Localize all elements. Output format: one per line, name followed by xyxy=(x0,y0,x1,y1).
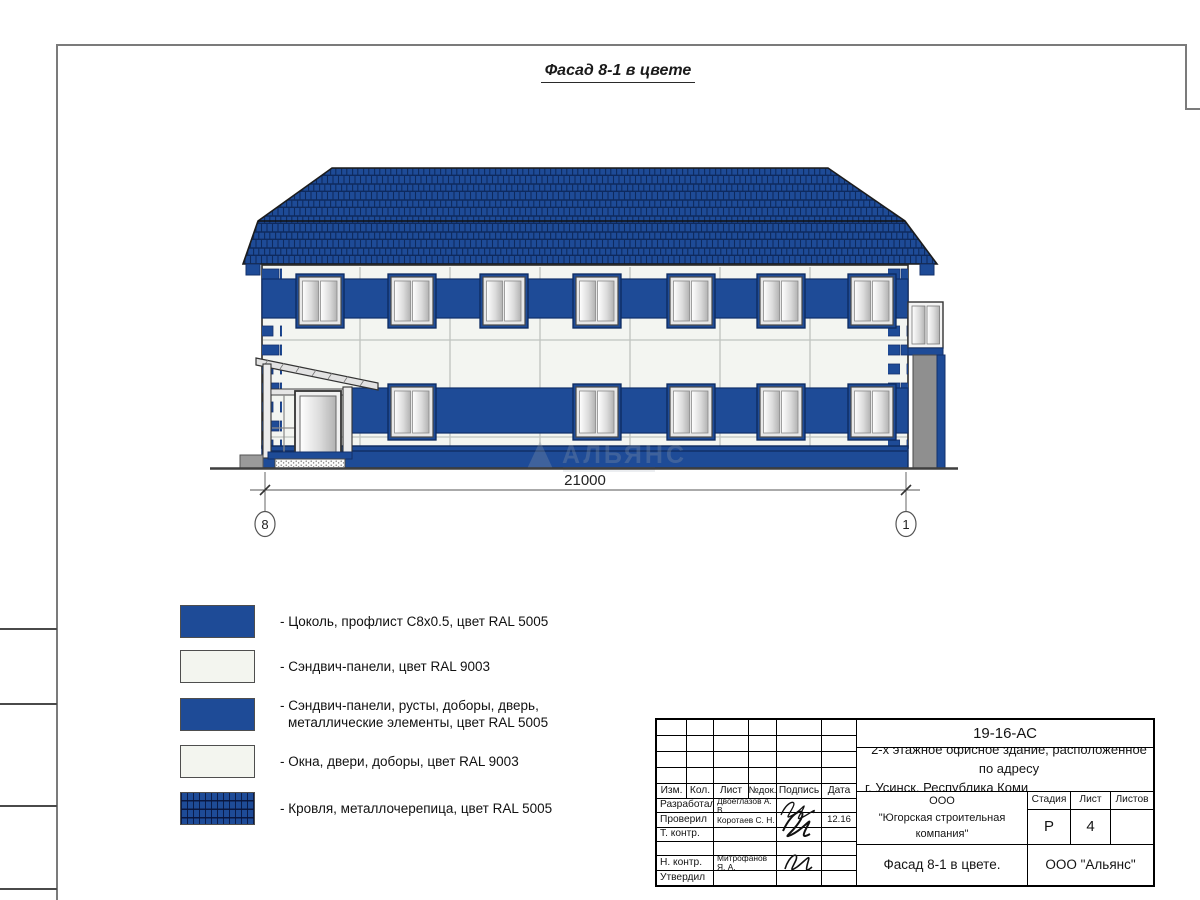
page-title: Фасад 8-1 в цвете xyxy=(541,62,696,83)
legend-swatch-windows xyxy=(180,745,255,778)
tb-drawing-title: Фасад 8-1 в цвете. xyxy=(857,845,1028,885)
tb-revision-cell xyxy=(714,768,749,784)
tb-date xyxy=(822,799,857,813)
legend-label: - Цоколь, профлист С8х0.5, цвет RAL 5005 xyxy=(280,613,548,630)
tb-revision-cell xyxy=(822,752,857,768)
fold-mark xyxy=(0,888,57,890)
tb-signature-cell xyxy=(777,842,822,856)
tb-revision-cell xyxy=(714,752,749,768)
tb-revision-cell xyxy=(714,736,749,752)
tb-revision-cell xyxy=(749,752,777,768)
tb-name xyxy=(714,828,777,842)
tb-date xyxy=(822,828,857,842)
tb-col-data: Дата xyxy=(822,784,857,799)
dimension: 21000 xyxy=(250,472,920,511)
tb-revision-cell xyxy=(687,768,714,784)
tb-col-ndok: №док. xyxy=(749,784,777,799)
legend-swatch-plinth xyxy=(180,605,255,638)
tb-role xyxy=(657,842,714,856)
tb-revision-cell xyxy=(777,752,822,768)
window xyxy=(480,274,528,328)
title-block: Изм. Кол. Лист №док. Подпись Дата Разраб… xyxy=(655,718,1155,887)
svg-text:1: 1 xyxy=(902,517,909,532)
tb-sheet-label: Лист xyxy=(1071,792,1111,810)
sheet-border-left xyxy=(56,44,58,900)
watermark-text: АЛЬЯНС xyxy=(562,441,687,469)
dimension-label: 21000 xyxy=(564,472,606,489)
tb-revision-cell xyxy=(822,720,857,736)
tb-revision-cell xyxy=(749,768,777,784)
window xyxy=(667,274,715,328)
tb-revision-cell xyxy=(657,736,687,752)
tb-description: 2-х этажное офисное здание, расположенно… xyxy=(857,748,1153,792)
window xyxy=(848,274,896,328)
tb-revision-cell xyxy=(687,720,714,736)
legend-swatch-roof xyxy=(180,792,255,825)
tb-org-name: ООО "Альянс" xyxy=(1028,845,1153,885)
sheet-border-top xyxy=(57,44,1187,46)
tb-revision-cell xyxy=(749,720,777,736)
tb-name: Митрофанов Я. А. xyxy=(714,856,777,871)
window xyxy=(667,384,715,440)
axis-marker-8: 8 xyxy=(255,512,275,537)
window xyxy=(388,274,436,328)
tb-sheets-label: Листов xyxy=(1111,792,1153,810)
tb-sheet-value: 4 xyxy=(1071,810,1111,845)
window xyxy=(757,384,805,440)
legend-item-plinth: - Цоколь, профлист С8х0.5, цвет RAL 5005 xyxy=(180,605,548,638)
tb-name xyxy=(714,871,777,885)
tb-date: 12.16 xyxy=(822,813,857,828)
tb-signature-cell xyxy=(777,871,822,885)
tb-revision-cell xyxy=(657,768,687,784)
tb-revision-cell xyxy=(714,720,749,736)
legend-label: - Сэндвич-панели, русты, доборы, дверь, … xyxy=(280,697,548,731)
tb-name xyxy=(714,842,777,856)
drawing-sheet: АЛЬЯНС 21000 8 1 Фасад 8-1 в цвете xyxy=(0,0,1200,900)
tb-company: ООО "Югорская строительная компания" xyxy=(857,792,1028,845)
window xyxy=(388,384,436,440)
legend-item-windows: - Окна, двери, доборы, цвет RAL 9003 xyxy=(180,745,519,778)
tb-role: Т. контр. xyxy=(657,828,714,842)
legend-swatch-sandwich-white xyxy=(180,650,255,683)
legend-item-roof: - Кровля, металлочерепица, цвет RAL 5005 xyxy=(180,792,552,825)
window xyxy=(757,274,805,328)
legend-label: - Окна, двери, доборы, цвет RAL 9003 xyxy=(280,753,519,770)
tb-date xyxy=(822,871,857,885)
side-annex xyxy=(908,302,945,468)
tb-doc-number: 19-16-АС xyxy=(857,720,1153,748)
legend-item-sandwich-blue: - Сэндвич-панели, русты, доборы, дверь, … xyxy=(180,697,548,731)
axis-marker-1: 1 xyxy=(896,512,916,537)
fold-mark xyxy=(0,703,57,705)
tb-revision-cell xyxy=(687,736,714,752)
svg-text:8: 8 xyxy=(261,517,268,532)
tb-col-kol: Кол. xyxy=(687,784,714,799)
sheet-border-right xyxy=(1185,44,1187,110)
tb-signature-cell xyxy=(777,799,822,813)
tb-signature-cell xyxy=(777,856,822,871)
legend-label: - Кровля, металлочерепица, цвет RAL 5005 xyxy=(280,800,552,817)
tb-col-list: Лист xyxy=(714,784,749,799)
tb-revision-cell xyxy=(777,720,822,736)
sheet-border-notch xyxy=(1185,108,1200,110)
window xyxy=(296,274,344,328)
window xyxy=(573,384,621,440)
tb-signature-cell xyxy=(777,813,822,828)
tb-date xyxy=(822,842,857,856)
tb-revision-cell xyxy=(777,736,822,752)
tb-col-izm: Изм. xyxy=(657,784,687,799)
tb-revision-cell xyxy=(822,736,857,752)
tb-revision-cell xyxy=(822,768,857,784)
tb-role: Проверил xyxy=(657,813,714,828)
tb-revision-cell xyxy=(777,768,822,784)
fold-mark xyxy=(0,805,57,807)
tb-name: Двоеглазов А. В. xyxy=(714,799,777,813)
tb-name: Коротаев С. Н. xyxy=(714,813,777,828)
tb-revision-cell xyxy=(749,736,777,752)
fold-mark xyxy=(0,628,57,630)
tb-col-podpis: Подпись xyxy=(777,784,822,799)
tb-role: Н. контр. xyxy=(657,856,714,871)
legend-label: - Сэндвич-панели, цвет RAL 9003 xyxy=(280,658,490,675)
tb-date xyxy=(822,856,857,871)
legend-item-sandwich-white: - Сэндвич-панели, цвет RAL 9003 xyxy=(180,650,490,683)
tb-stage-label: Стадия xyxy=(1028,792,1071,810)
tb-revision-cell xyxy=(687,752,714,768)
tb-sheets-value xyxy=(1111,810,1153,845)
tb-role: Разработал xyxy=(657,799,714,813)
tb-role: Утвердил xyxy=(657,871,714,885)
tb-revision-cell xyxy=(657,752,687,768)
tb-signature-cell xyxy=(777,828,822,842)
window xyxy=(848,384,896,440)
roof xyxy=(243,168,937,275)
legend-swatch-sandwich-blue xyxy=(180,698,255,731)
tb-revision-cell xyxy=(657,720,687,736)
tb-stage-value: Р xyxy=(1028,810,1071,845)
window xyxy=(573,274,621,328)
